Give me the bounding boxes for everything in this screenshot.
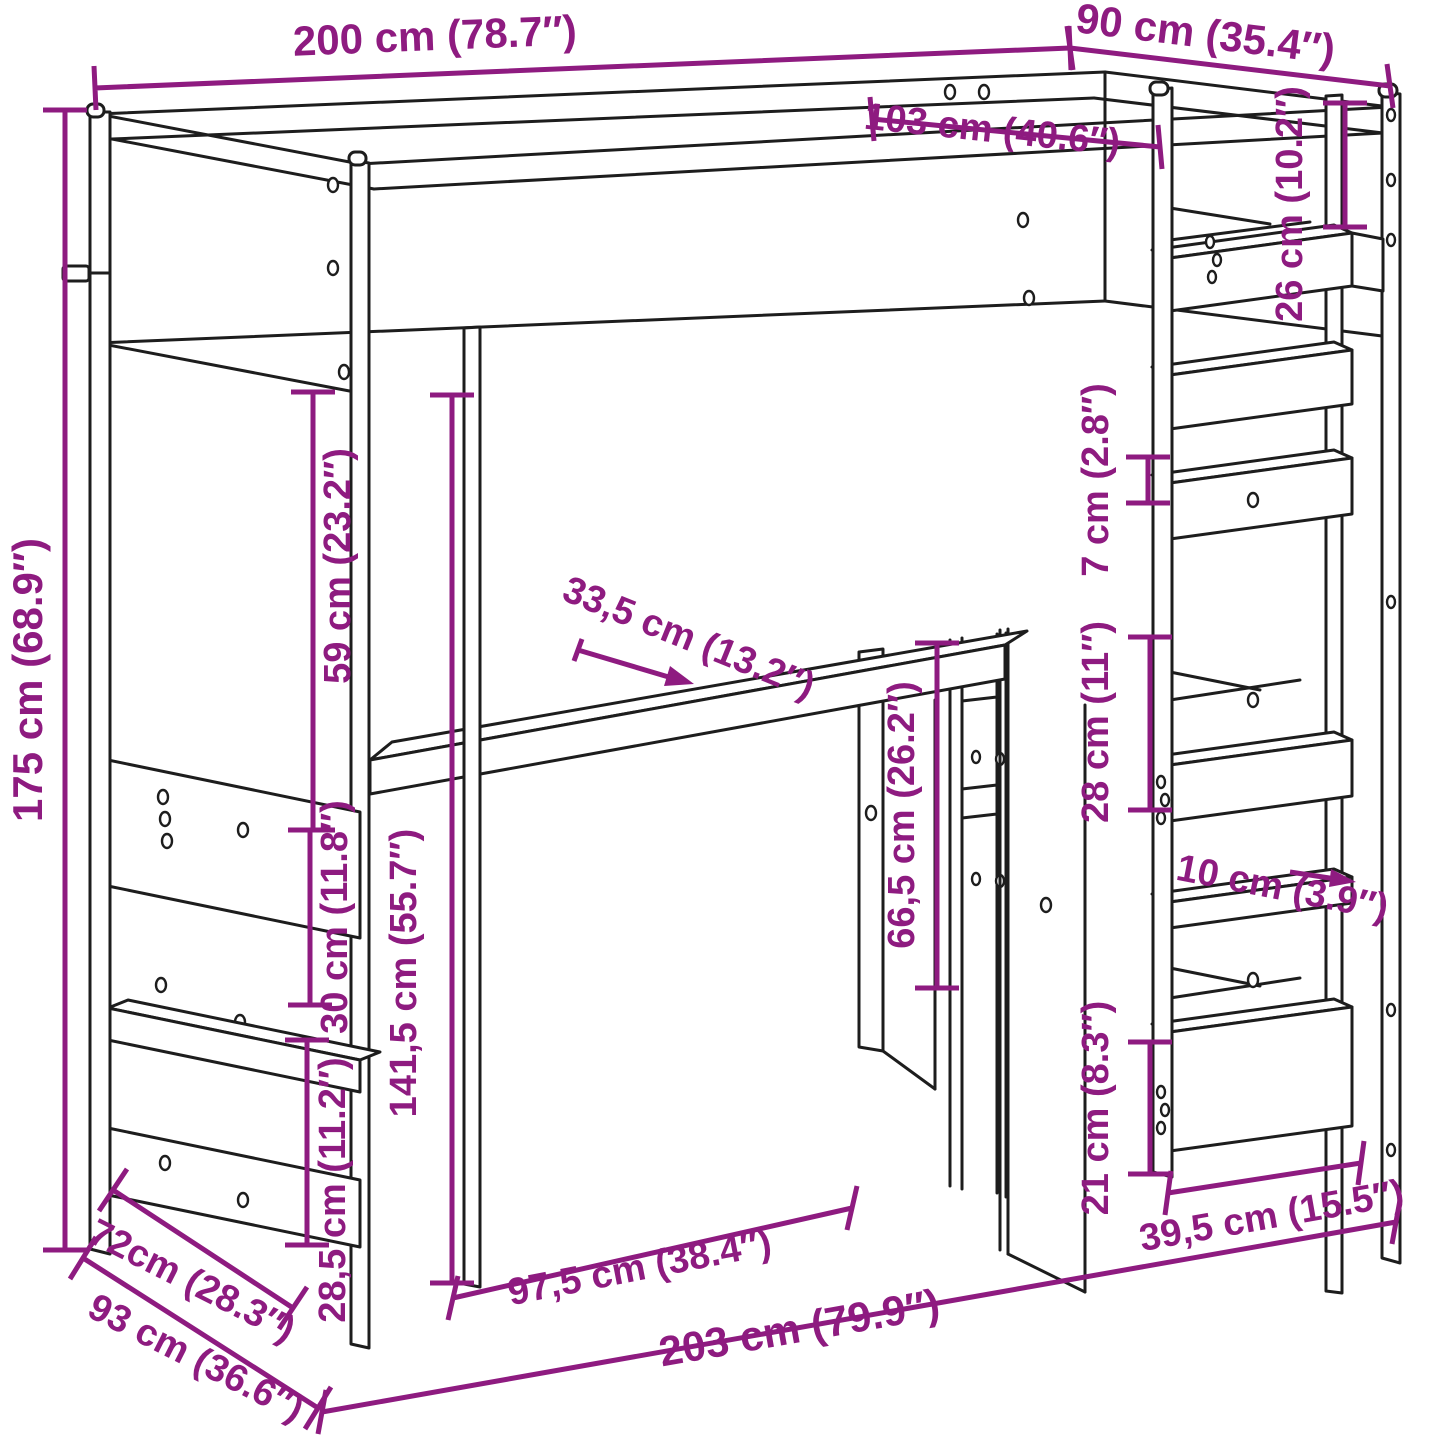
diagram-page: 200 cm (78.7″) 90 cm (35.4″) 103 cm (40.… xyxy=(0,0,1445,1445)
dim-desk-width: 97,5 cm (38.4″) xyxy=(448,1186,857,1320)
dimension-diagram: 200 cm (78.7″) 90 cm (35.4″) 103 cm (40.… xyxy=(0,0,1445,1445)
bed-top-frame xyxy=(98,72,1390,393)
dim-bed-to-desk-height: 59 cm (23.2″) xyxy=(291,392,359,830)
dim-label-under-bed-clearance: 141,5 cm (55.7″) xyxy=(383,829,425,1118)
desk-divider xyxy=(859,649,883,1051)
dim-label-overall-length-top: 200 cm (78.7″) xyxy=(292,6,578,64)
dim-label-shelf-gap-small: 7 cm (2.8″) xyxy=(1075,383,1117,577)
dim-label-top-shelf-offset: 26 cm (10.2″) xyxy=(1269,86,1311,322)
dim-desk-depth: 33,5 cm (13.2″) xyxy=(557,569,821,708)
dim-label-desk-depth: 33,5 cm (13.2″) xyxy=(557,569,821,708)
dim-label-bottom-shelf-height: 21 cm (8.3″) xyxy=(1075,1001,1117,1216)
tower-shelf-6 xyxy=(1170,1007,1352,1151)
dim-overall-depth-top: 90 cm (35.4″) xyxy=(1067,0,1393,108)
tower-front-left-post xyxy=(1153,88,1172,1177)
cabinet-shelf xyxy=(962,785,997,818)
furniture-line-art xyxy=(63,72,1400,1348)
dim-label-overall-height: 175 cm (68.9″) xyxy=(4,538,51,822)
dim-label-bed-to-desk-height: 59 cm (23.2″) xyxy=(317,448,359,684)
dim-label-desk-height: 66,5 cm (26.2″) xyxy=(881,681,923,948)
dim-label-tower-width: 39,5 cm (15.5″) xyxy=(1136,1172,1407,1260)
dim-label-left-shelf-gap: 30 cm (11.8″) xyxy=(314,800,356,1034)
desk-left-support xyxy=(464,327,480,1287)
dim-label-shelf-gap-mid: 28 cm (11″) xyxy=(1075,621,1117,823)
dim-label-desk-width: 97,5 cm (38.4″) xyxy=(504,1222,775,1314)
dim-under-bed-clearance: 141,5 cm (55.7″) xyxy=(383,395,474,1283)
dim-label-left-bottom-gap: 28,5 cm (11.2″) xyxy=(312,1057,354,1322)
dim-desk-height: 66,5 cm (26.2″) xyxy=(881,643,959,988)
tower-back-post xyxy=(1382,92,1400,1263)
left-front-post xyxy=(90,112,110,1254)
dim-label-overall-length-floor: 203 cm (79.9″) xyxy=(655,1280,943,1376)
desk xyxy=(370,327,1027,1287)
